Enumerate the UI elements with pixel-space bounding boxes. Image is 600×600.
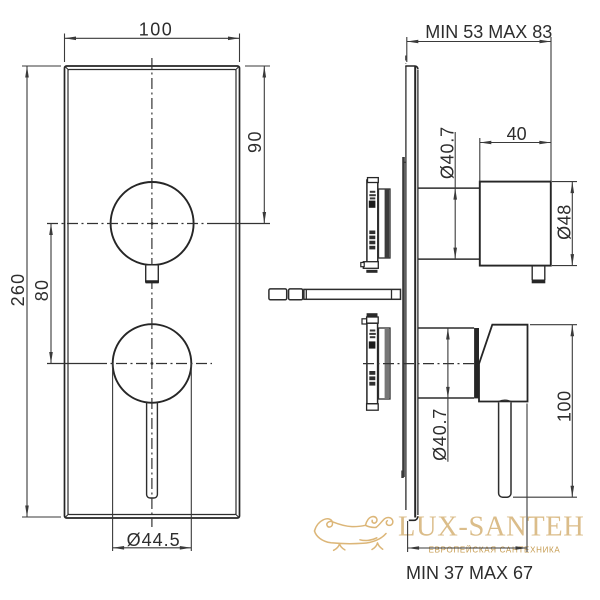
svg-text:Ø44.5: Ø44.5 [127, 530, 181, 550]
svg-text:LUX-SANTEH: LUX-SANTEH [398, 512, 584, 543]
svg-text:MIN 37 MAX 67: MIN 37 MAX 67 [406, 563, 533, 583]
svg-text:Ø40.7: Ø40.7 [430, 408, 450, 461]
svg-text:100: 100 [554, 390, 574, 422]
svg-text:40: 40 [507, 124, 527, 144]
svg-text:Ø48: Ø48 [555, 204, 575, 240]
svg-text:MIN 53 MAX 83: MIN 53 MAX 83 [425, 22, 552, 42]
svg-text:80: 80 [32, 279, 52, 301]
svg-text:260: 260 [8, 273, 28, 307]
svg-text:100: 100 [139, 20, 174, 40]
svg-text:ЕВРОПЕЙСКАЯ САНТЕХНИКА: ЕВРОПЕЙСКАЯ САНТЕХНИКА [429, 545, 561, 554]
svg-text:Ø40.7: Ø40.7 [437, 126, 457, 179]
svg-text:90: 90 [245, 130, 265, 153]
